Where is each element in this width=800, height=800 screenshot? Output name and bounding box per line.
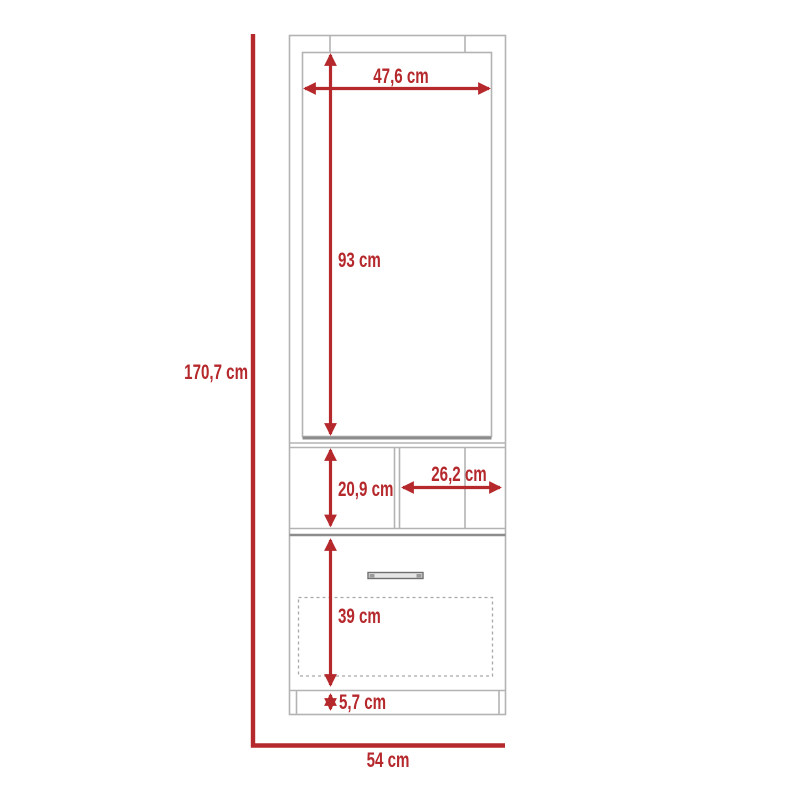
drawer-handle <box>368 573 423 579</box>
drawer-handle-left-cap <box>370 574 375 578</box>
overall-height-label: 170,7 cm <box>184 359 248 383</box>
base-height-label: 5,7 cm <box>339 689 386 713</box>
dimension-annotations: 170,7 cm 54 cm 47,6 cm 93 cm 20,9 cm 26,… <box>184 34 505 772</box>
shelf-height-label: 20,9 cm <box>338 476 393 500</box>
shelf-width-label: 26,2 cm <box>431 461 486 485</box>
overall-dimension-frame-line <box>253 34 505 746</box>
drawer-handle-bar <box>368 573 423 579</box>
drawer-height-label: 39 cm <box>338 603 381 627</box>
cabinet-outline <box>290 36 506 715</box>
drawer-handle-right-cap <box>417 574 422 578</box>
door-width-label: 47,6 cm <box>373 63 428 87</box>
overall-width-label: 54 cm <box>367 747 410 771</box>
diagram-canvas: 170,7 cm 54 cm 47,6 cm 93 cm 20,9 cm 26,… <box>0 0 800 800</box>
dimension-diagram: 170,7 cm 54 cm 47,6 cm 93 cm 20,9 cm 26,… <box>0 0 800 800</box>
door-height-label: 93 cm <box>338 247 381 271</box>
cabinet-body-outline <box>290 36 506 715</box>
drawer-dashed-outline <box>299 598 493 677</box>
